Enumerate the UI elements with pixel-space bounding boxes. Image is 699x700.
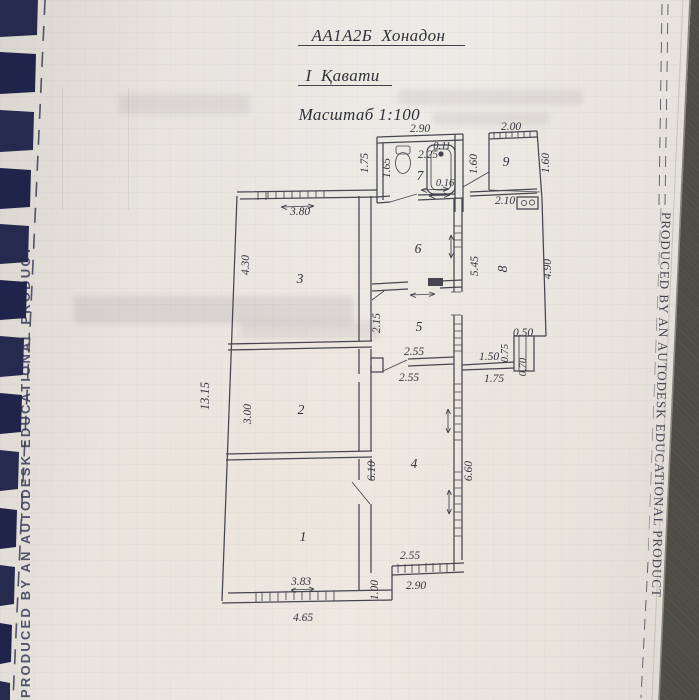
dim-room3-h: 4.30 xyxy=(240,255,252,275)
dim-counter: 2.10 xyxy=(495,195,515,207)
room-labels: 1 2 3 4 5 6 7 8 9 xyxy=(296,154,510,544)
heater-icon xyxy=(428,278,443,286)
dim-porch-left-h: 1.60 xyxy=(468,154,480,174)
dim-room3-width: 3.80 xyxy=(289,206,310,218)
dim-toilet-side: 2.25 xyxy=(418,149,438,161)
room-label-5: 5 xyxy=(416,319,423,334)
dim-room1-window: 3.83 xyxy=(290,576,311,588)
dim-bottom-window-inner: 2.55 xyxy=(400,550,420,562)
dim-tub-bottom: 0.16 xyxy=(436,178,455,189)
dim-ledge-top: 1.50 xyxy=(479,351,499,363)
room-label-4: 4 xyxy=(411,456,418,471)
dim-kitchen-right-h: 4.90 xyxy=(542,259,554,279)
dim-bath-outer-h: 1.75 xyxy=(359,153,371,173)
dim-hall-top: 2.55 xyxy=(404,346,424,358)
room-label-7: 7 xyxy=(417,168,425,183)
dim-hall-left-h: 6.10 xyxy=(366,461,378,481)
dim-room1-outer: 4.65 xyxy=(293,612,313,624)
photographed-floor-plan: АА1А2Б Хонадон I Қавати Масштаб 1:100 PR… xyxy=(0,0,699,700)
dim-top-porch: 2.00 xyxy=(501,121,521,133)
title-line-2: I Қавати xyxy=(298,66,392,86)
dim-hall-top2: 2.55 xyxy=(399,372,419,384)
room-label-9: 9 xyxy=(503,154,510,169)
room-label-1: 1 xyxy=(300,529,307,544)
title-line-1: АА1А2Б Хонадон xyxy=(298,26,466,46)
dim-total-left-h: 13.15 xyxy=(198,382,212,410)
dim-duct-right: 0.70 xyxy=(518,357,529,376)
dim-hall-right-h: 6.60 xyxy=(463,461,475,481)
room-label-3: 3 xyxy=(296,271,304,286)
dim-bottom-window-outer: 2.90 xyxy=(406,580,426,592)
dim-room2-h: 3.00 xyxy=(242,404,254,425)
dim-ledge-bottom: 1.75 xyxy=(484,373,504,385)
dim-duct-left: 0.75 xyxy=(500,344,511,362)
dim-room5-h: 2.15 xyxy=(371,313,383,333)
toilet-icon xyxy=(396,146,411,174)
dim-bath-inner-h: 1.65 xyxy=(381,158,393,178)
stove-icon xyxy=(517,197,538,209)
dim-step-h: 1.00 xyxy=(369,580,381,600)
drawing-title: АА1А2Б Хонадон I Қавати Масштаб 1:100 xyxy=(279,7,465,143)
door-window-arrows xyxy=(281,187,454,593)
room-label-8: 8 xyxy=(495,265,510,272)
dim-porch-right-h: 1.60 xyxy=(540,153,552,173)
dim-kitchen-left-h: 5.45 xyxy=(469,256,481,276)
room-label-2: 2 xyxy=(298,402,305,417)
title-line-3: Масштаб 1:100 xyxy=(299,105,420,124)
dim-duct-top: 0.50 xyxy=(513,327,533,339)
room-label-6: 6 xyxy=(415,241,422,256)
